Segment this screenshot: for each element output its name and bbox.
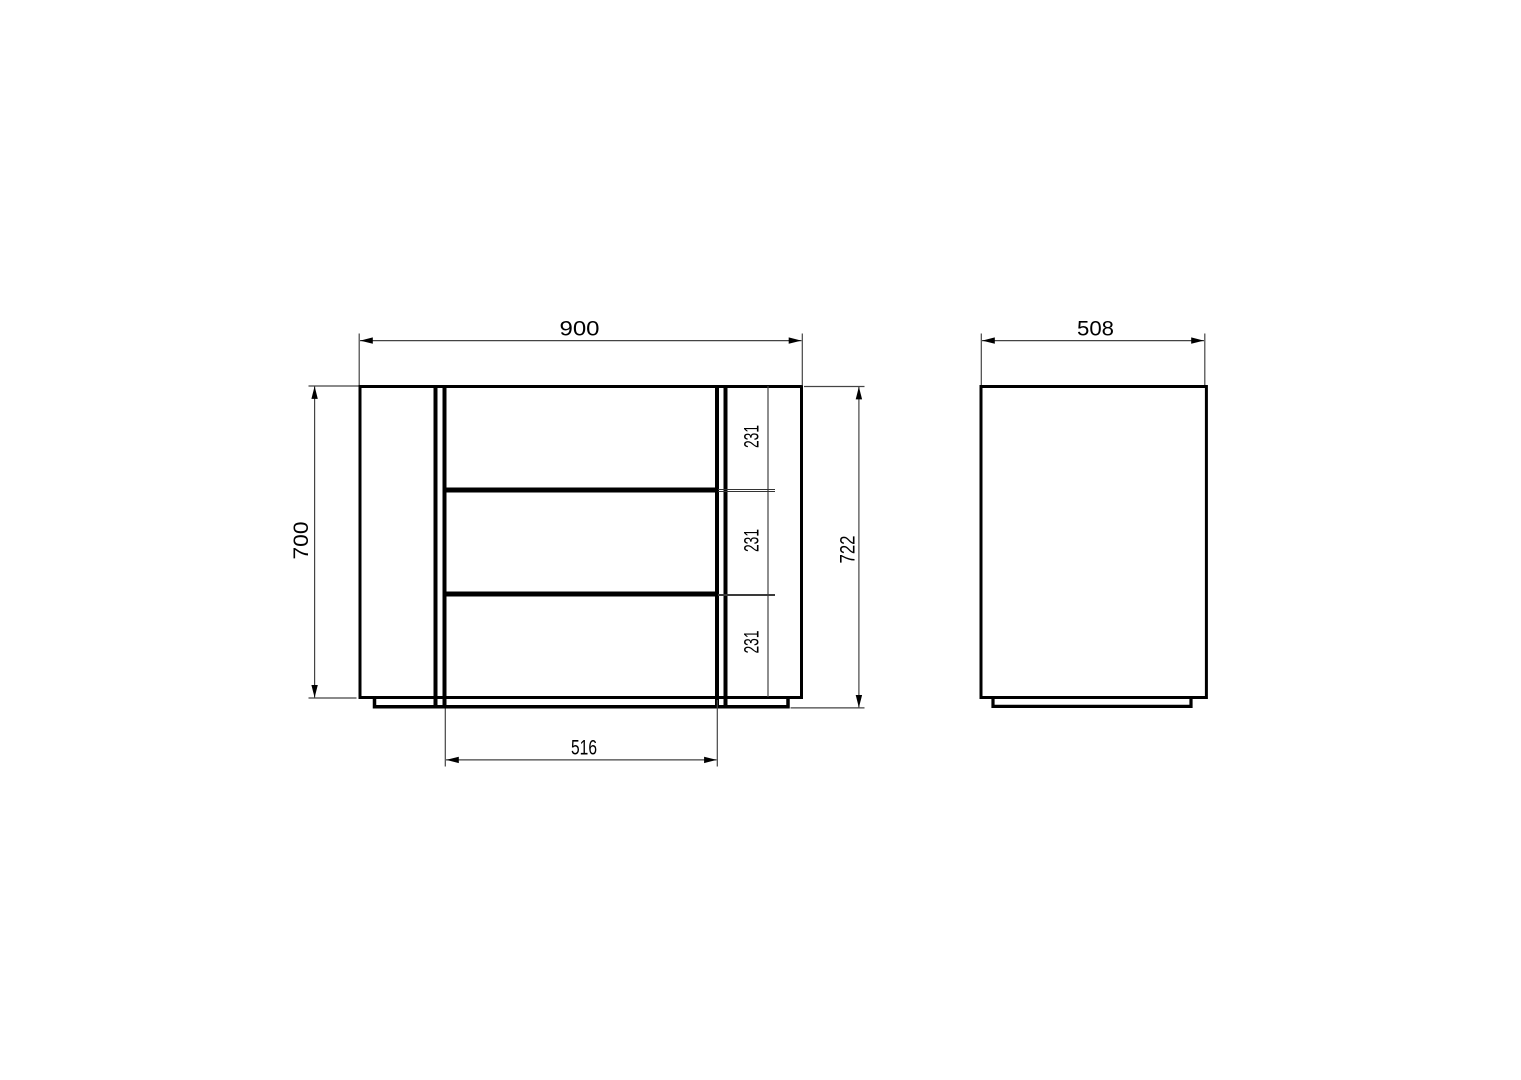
svg-text:700: 700 (290, 522, 313, 560)
svg-text:900: 900 (560, 318, 600, 341)
svg-text:231: 231 (741, 425, 764, 448)
svg-text:722: 722 (837, 536, 860, 564)
svg-text:516: 516 (571, 737, 597, 760)
svg-text:231: 231 (741, 631, 764, 654)
svg-text:508: 508 (1077, 318, 1114, 341)
svg-text:231: 231 (741, 529, 764, 552)
